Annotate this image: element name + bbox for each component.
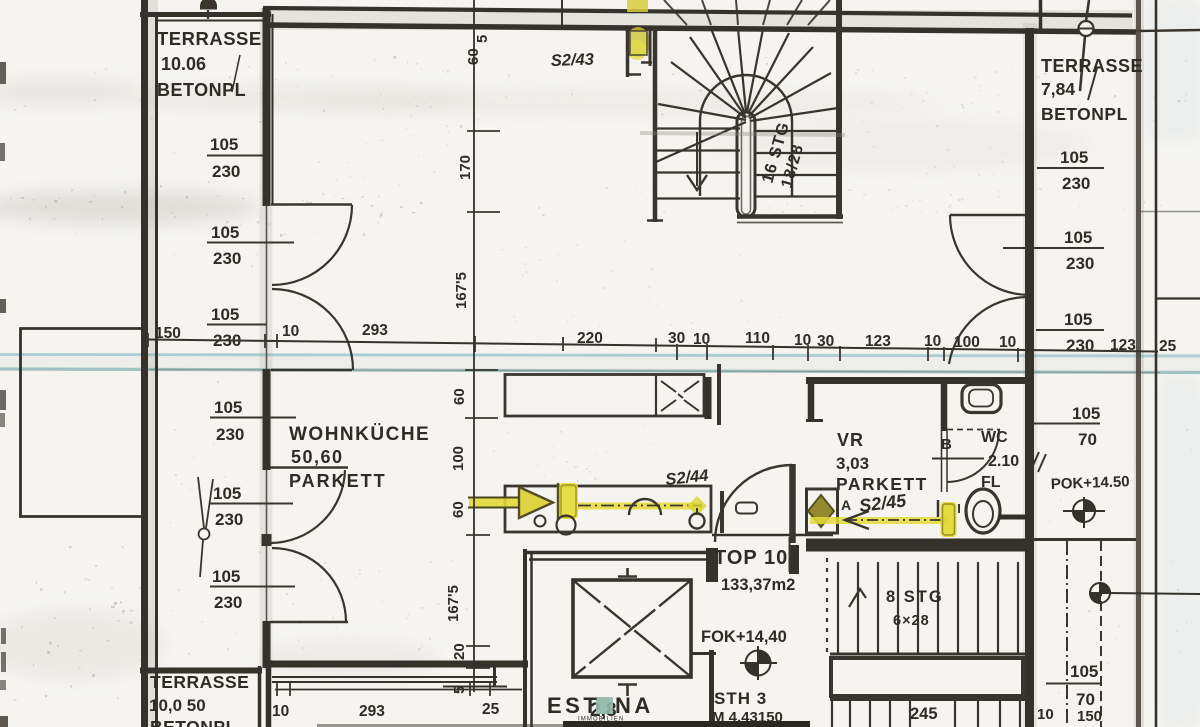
- svg-text:TOP 10: TOP 10: [714, 547, 788, 569]
- svg-text:B: B: [941, 436, 952, 453]
- svg-text:5: 5: [451, 686, 468, 694]
- svg-text:230: 230: [214, 593, 242, 612]
- svg-text:105: 105: [1064, 310, 1092, 329]
- svg-text:293: 293: [362, 322, 388, 339]
- svg-text:3,03: 3,03: [836, 454, 869, 473]
- svg-text:230: 230: [1062, 174, 1090, 193]
- svg-text:220: 220: [577, 330, 603, 347]
- svg-text:30: 30: [668, 330, 685, 347]
- svg-text:PARKETT: PARKETT: [289, 471, 387, 491]
- svg-text:10: 10: [794, 332, 811, 349]
- svg-text:TERRASSE: TERRASSE: [157, 28, 262, 49]
- svg-text:123: 123: [865, 333, 891, 350]
- svg-text:150: 150: [1077, 708, 1102, 725]
- svg-text:7,84: 7,84: [1041, 79, 1075, 99]
- svg-text:105: 105: [212, 567, 240, 586]
- svg-text:10: 10: [999, 334, 1016, 351]
- svg-text:10.06: 10.06: [161, 54, 206, 74]
- svg-text:105: 105: [1060, 148, 1088, 167]
- svg-text:100: 100: [450, 446, 467, 471]
- svg-text:10: 10: [924, 333, 941, 350]
- svg-text:170: 170: [457, 155, 474, 180]
- svg-text:10: 10: [693, 331, 710, 348]
- svg-text:30: 30: [817, 333, 834, 350]
- svg-text:FOK+14,40: FOK+14,40: [701, 628, 787, 646]
- svg-text:NA: NA: [615, 693, 654, 718]
- svg-text:10: 10: [282, 323, 299, 340]
- svg-text:230: 230: [213, 249, 241, 268]
- svg-text:167'5: 167'5: [453, 272, 470, 309]
- svg-text:150: 150: [155, 325, 181, 342]
- svg-text:105: 105: [213, 484, 241, 503]
- svg-text:167'5: 167'5: [445, 585, 462, 622]
- svg-text:70: 70: [1076, 690, 1095, 709]
- svg-text:WOHNKÜCHE: WOHNKÜCHE: [289, 424, 430, 445]
- svg-text:105: 105: [210, 135, 238, 154]
- svg-text:20: 20: [451, 643, 468, 660]
- svg-text:105: 105: [211, 223, 239, 242]
- svg-text:230: 230: [216, 425, 244, 444]
- svg-text:60: 60: [450, 501, 467, 518]
- svg-text:BETONPL: BETONPL: [150, 717, 237, 727]
- svg-text:PARKETT: PARKETT: [836, 474, 928, 494]
- svg-text:230: 230: [212, 162, 240, 181]
- svg-text:8 STG: 8 STG: [886, 588, 944, 606]
- svg-text:105: 105: [1070, 662, 1098, 681]
- svg-text:230: 230: [1066, 254, 1094, 273]
- svg-text:TERRASSE: TERRASSE: [150, 672, 249, 692]
- svg-text:10: 10: [1037, 706, 1054, 723]
- svg-text:230: 230: [215, 510, 243, 529]
- svg-text:STH 3: STH 3: [714, 689, 767, 708]
- svg-text:WC: WC: [981, 429, 1008, 446]
- svg-text:105: 105: [1072, 404, 1100, 423]
- svg-text:100: 100: [954, 334, 980, 351]
- svg-text:POK+14.50: POK+14.50: [1051, 473, 1130, 493]
- svg-text:25: 25: [1159, 338, 1177, 355]
- svg-text:10,0 50: 10,0 50: [149, 696, 206, 715]
- svg-text:293: 293: [359, 703, 385, 720]
- svg-text:105: 105: [211, 305, 239, 324]
- svg-text:230: 230: [1066, 336, 1094, 355]
- svg-text:60: 60: [465, 48, 482, 65]
- svg-text:105: 105: [214, 398, 242, 417]
- svg-text:6×28: 6×28: [893, 613, 930, 629]
- svg-text:70: 70: [1078, 430, 1097, 449]
- svg-text:TERRASSE: TERRASSE: [1041, 56, 1143, 76]
- svg-text:S2/43: S2/43: [551, 51, 595, 70]
- svg-text:EST: EST: [547, 693, 600, 718]
- svg-text:50,60: 50,60: [291, 447, 344, 467]
- svg-text:60: 60: [451, 388, 468, 405]
- svg-text:5: 5: [474, 35, 491, 43]
- svg-text:2.10: 2.10: [988, 453, 1019, 470]
- svg-text:133,37m2: 133,37m2: [721, 576, 795, 594]
- svg-text:VR: VR: [837, 430, 864, 450]
- svg-text:A: A: [841, 497, 851, 513]
- svg-text:105: 105: [1064, 228, 1092, 247]
- svg-text:245: 245: [910, 705, 938, 723]
- svg-text:10: 10: [272, 703, 289, 720]
- svg-text:BETONPL: BETONPL: [1041, 104, 1128, 124]
- svg-text:123: 123: [1110, 337, 1136, 354]
- svg-text:25: 25: [482, 701, 500, 718]
- svg-text:110: 110: [745, 330, 770, 347]
